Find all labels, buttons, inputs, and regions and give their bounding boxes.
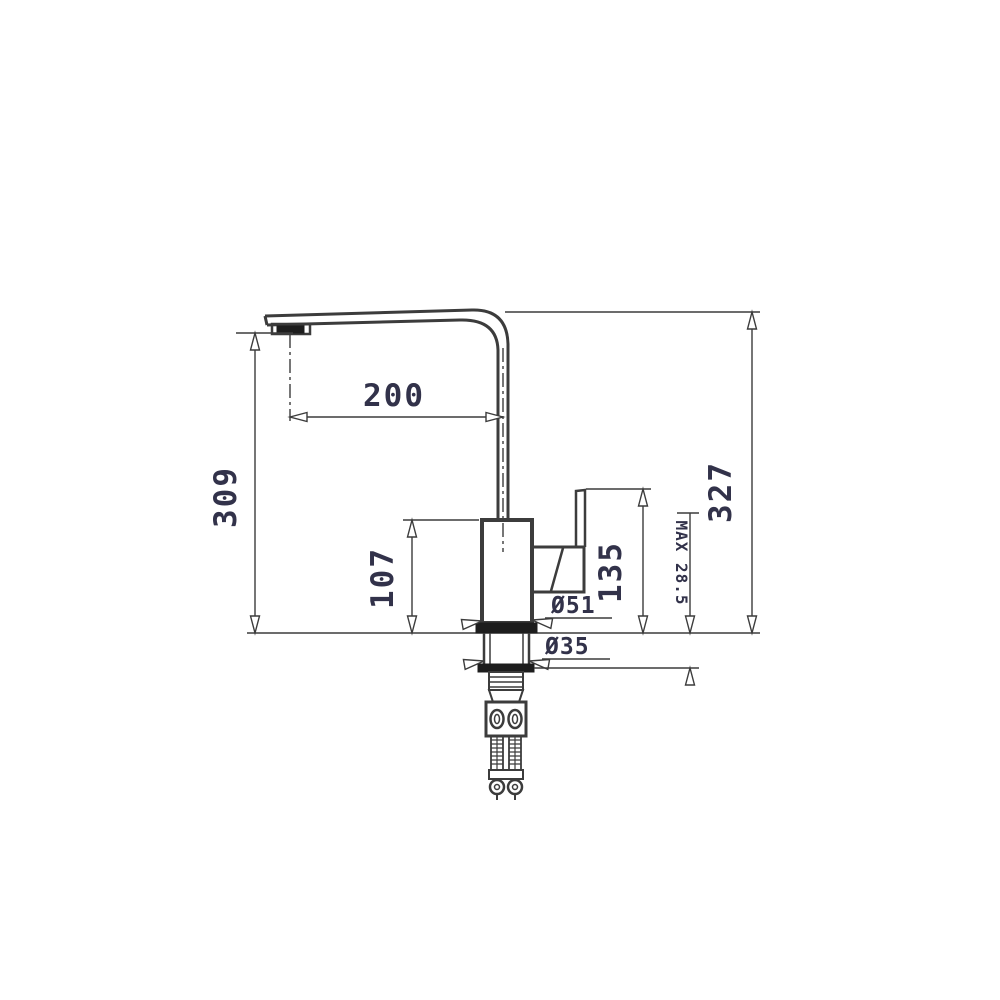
- handle-lever: [576, 490, 585, 547]
- dim-lever-height-label: 135: [593, 541, 629, 603]
- handle-assembly: [532, 490, 585, 592]
- handle-pivot-line: [551, 548, 563, 591]
- dim-overall-height: 327: [505, 312, 760, 633]
- dim-body-diameter-label: Ø51: [550, 593, 596, 619]
- dim-spout-reach: 200: [290, 378, 503, 422]
- dim-spout-outlet-height-label: 309: [208, 466, 244, 528]
- dim-max-deck-thickness-label: MAX 28.5: [672, 520, 691, 605]
- hoses: [491, 736, 521, 770]
- faucet-technical-drawing: 200 309 327 107: [0, 0, 1000, 1000]
- hose-block: [486, 702, 526, 736]
- under-counter-assembly: [478, 633, 534, 800]
- dim-spout-reach-label: 200: [363, 378, 425, 414]
- base-flange: [476, 623, 537, 633]
- faucet-body: [482, 520, 532, 623]
- dim-lever-height: 135: [586, 489, 651, 633]
- dim-spout-outlet-height: 309: [208, 333, 293, 633]
- mounting-nut: [478, 664, 534, 672]
- dim-body-height-label: 107: [365, 547, 401, 609]
- dim-shank-diameter-label: Ø35: [544, 634, 590, 660]
- dim-body-height: 107: [365, 520, 479, 633]
- dim-overall-height-label: 327: [703, 461, 739, 523]
